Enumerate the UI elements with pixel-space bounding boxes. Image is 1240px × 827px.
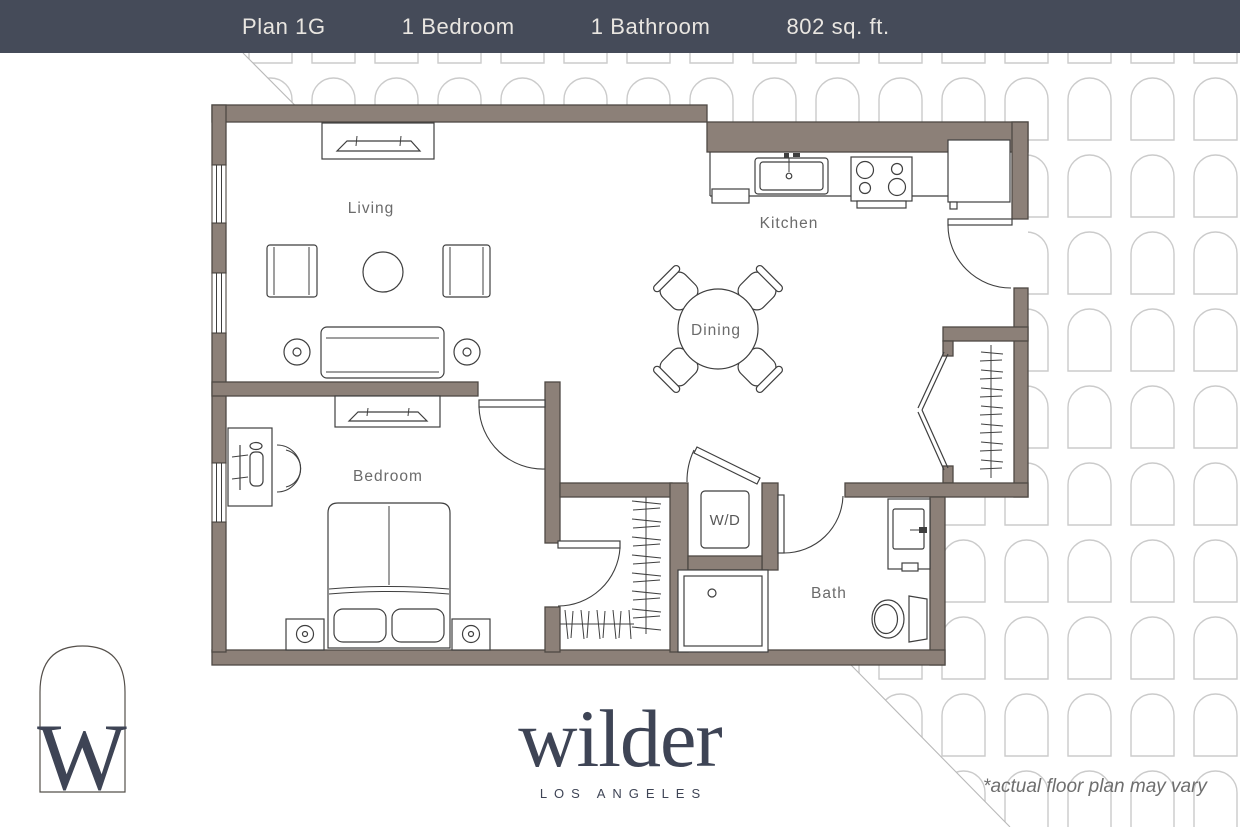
pillow [392, 609, 444, 642]
bed [328, 503, 450, 648]
dresser [335, 396, 440, 427]
flyer-page: Plan 1G 1 Bedroom 1 Bathroom 802 sq. ft. [0, 0, 1240, 827]
room-label-kitchen: Kitchen [760, 215, 819, 232]
side-table [284, 339, 310, 365]
pillow [334, 609, 386, 642]
floor-plan: Living Kitchen Dining Bedroom W/D Bath W [0, 0, 1240, 827]
room-label-bath: Bath [811, 585, 847, 602]
room-label-living: Living [348, 200, 395, 217]
plan-name: Plan 1G [242, 14, 326, 40]
room-label-dining: Dining [691, 322, 741, 339]
square-footage: 802 sq. ft. [786, 14, 889, 40]
kitchen-sink [755, 153, 828, 194]
header-bar: Plan 1G 1 Bedroom 1 Bathroom 802 sq. ft. [0, 0, 1240, 53]
armchair [267, 245, 317, 297]
bedroom-count: 1 Bedroom [402, 14, 515, 40]
window [212, 165, 226, 223]
coffee-table [363, 252, 403, 292]
room-label-bedroom: Bedroom [353, 468, 423, 485]
window [212, 273, 226, 333]
stove [851, 157, 912, 208]
bathroom-count: 1 Bathroom [591, 14, 711, 40]
media-console [322, 123, 434, 159]
monogram-letter: W [37, 704, 127, 810]
nightstand [452, 619, 490, 650]
vanity-sink [888, 499, 930, 571]
armchair [443, 245, 490, 297]
disclaimer-text: *actual floor plan may vary [950, 776, 1240, 798]
sofa [321, 327, 444, 378]
room-label-laundry: W/D [710, 512, 741, 529]
refrigerator [948, 140, 1010, 209]
monogram-logo: W [37, 646, 127, 810]
window [212, 463, 226, 522]
nightstand [286, 619, 324, 650]
side-table [454, 339, 480, 365]
shower [678, 570, 768, 652]
